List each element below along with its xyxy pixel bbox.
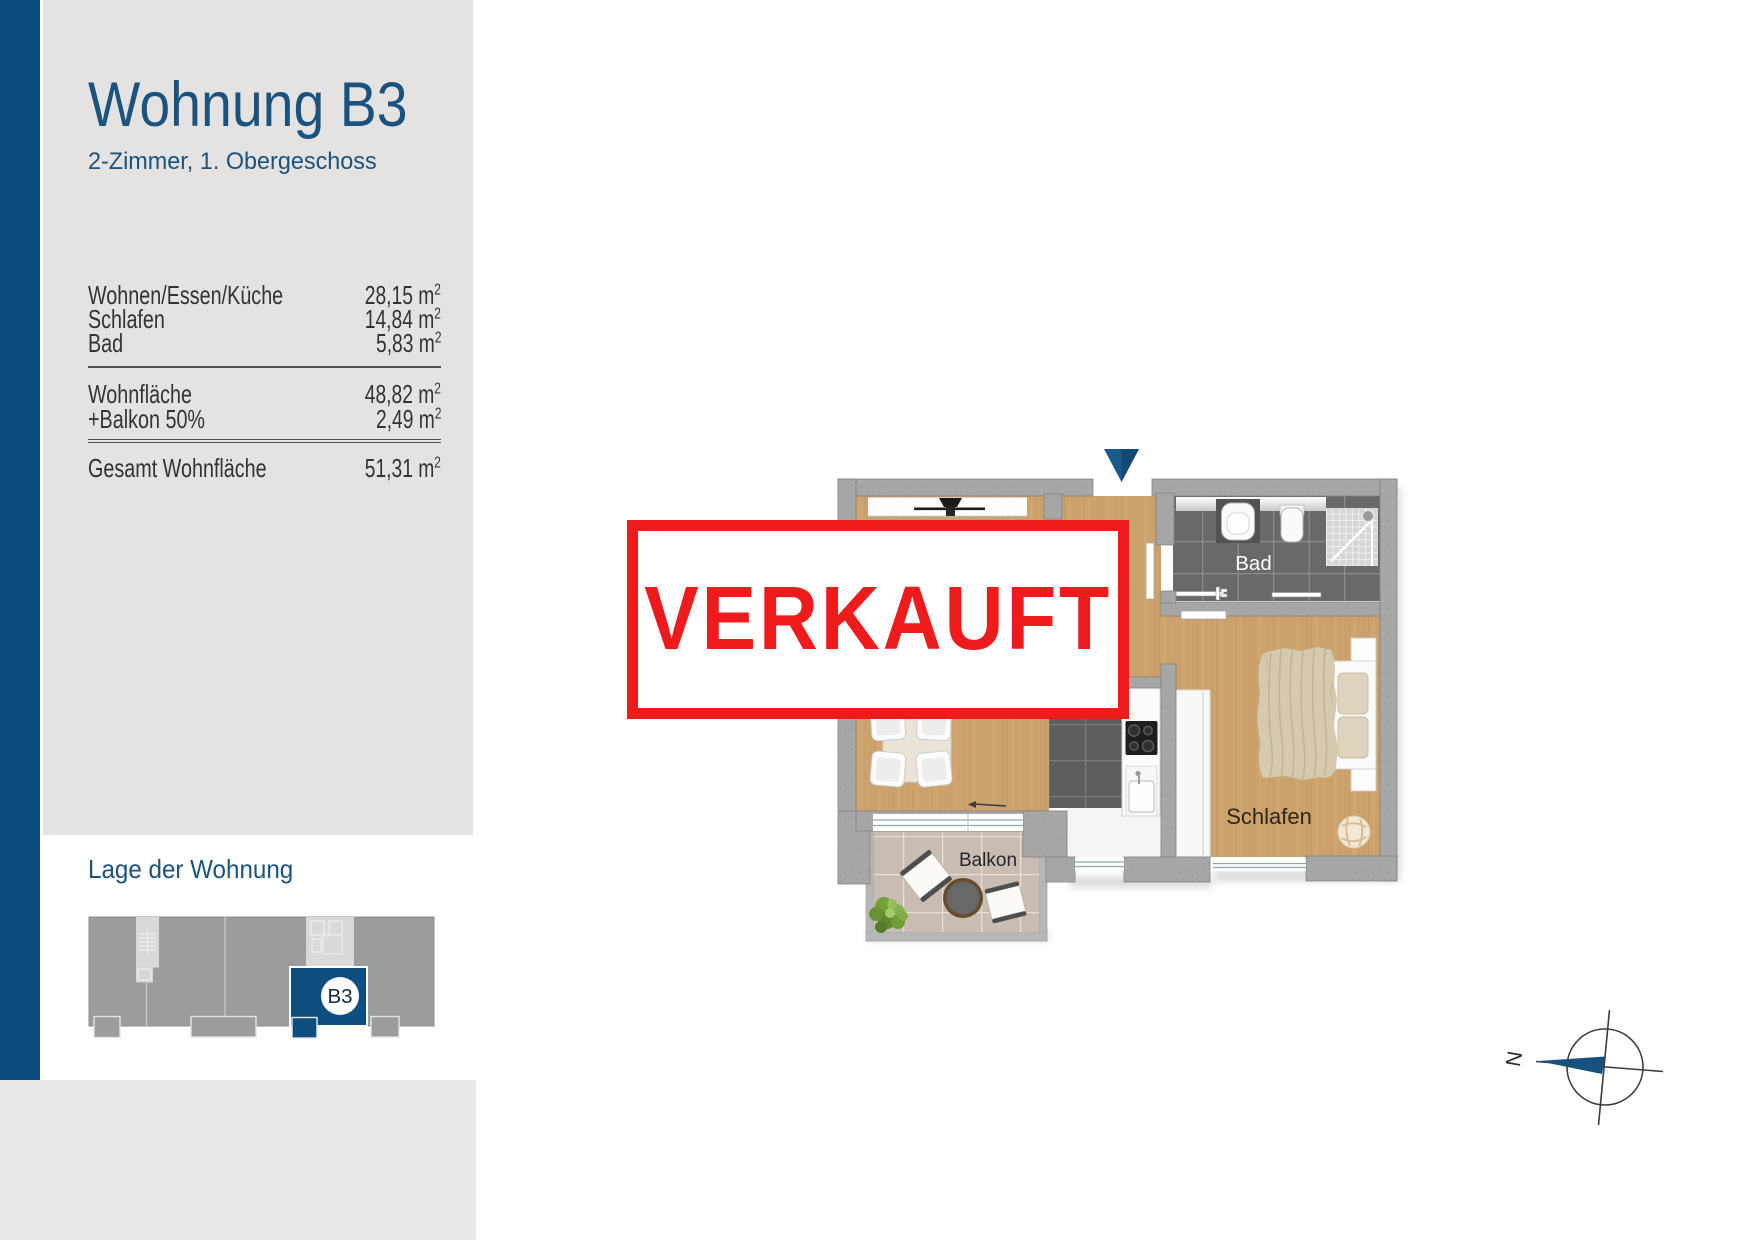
- svg-text:N: N: [1502, 1049, 1527, 1068]
- svg-text:Schlafen: Schlafen: [1226, 804, 1312, 829]
- svg-text:Bad: Bad: [1235, 552, 1271, 575]
- svg-text:Balkon: Balkon: [959, 850, 1017, 871]
- svg-text:B3: B3: [327, 985, 352, 1008]
